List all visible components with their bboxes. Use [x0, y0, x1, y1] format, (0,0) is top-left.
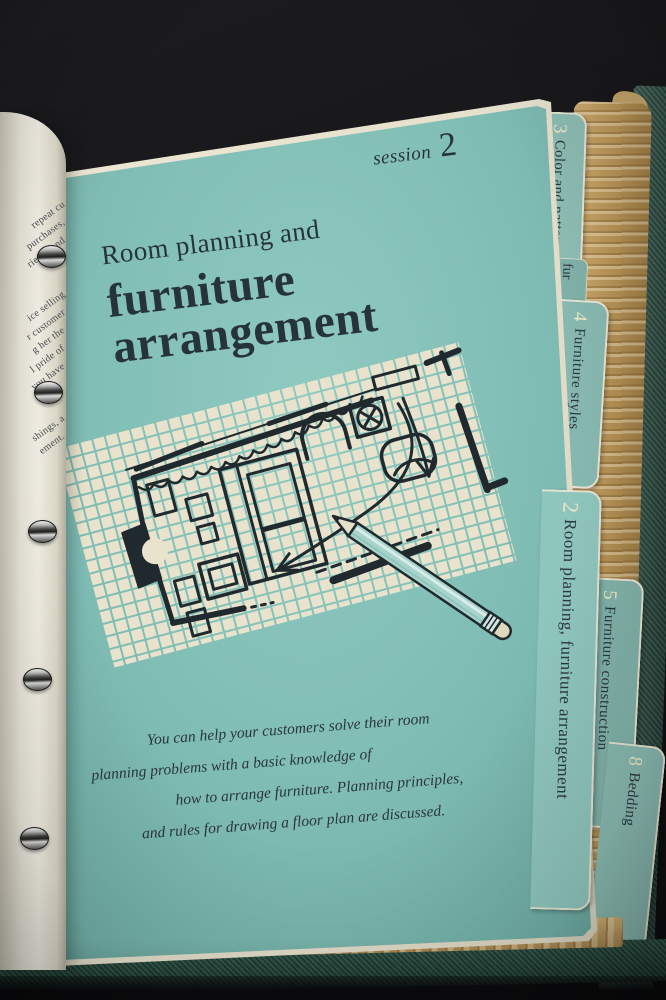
bottom-shadow	[0, 976, 666, 1000]
tab-room-planning: 2 Room planning, furniture arrangement	[530, 489, 602, 911]
tab-number: 2	[559, 502, 581, 514]
binder-ring	[28, 520, 57, 543]
binder-ring	[20, 827, 49, 850]
book-photo: 3 Color and pattern fur 4 Furniture styl…	[0, 0, 666, 1000]
tab-number: 3	[550, 124, 569, 134]
binder-ring	[23, 668, 52, 691]
tab-number: 8	[625, 755, 645, 766]
tab-number: 5	[600, 590, 619, 600]
grid-paper	[56, 342, 516, 667]
binder-ring	[34, 381, 63, 404]
floor-plan-illustration	[28, 320, 573, 692]
binder-ring	[37, 245, 66, 268]
tab-label: Bedding	[620, 771, 643, 827]
session-number: 2	[437, 128, 458, 164]
tab-label: Room planning, furniture arrangement	[552, 519, 580, 800]
